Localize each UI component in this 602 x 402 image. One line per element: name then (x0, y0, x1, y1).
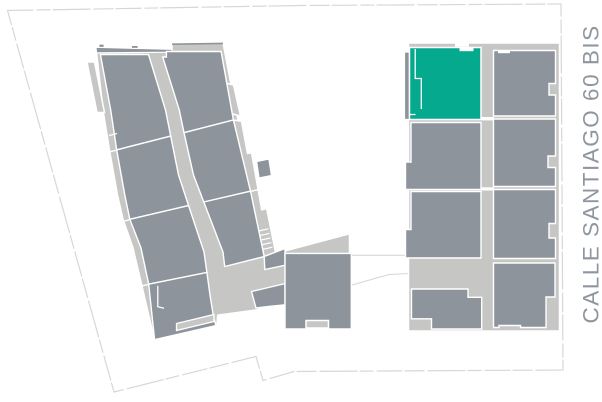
svg-text:CALLE SANTIAGO 60 BIS: CALLE SANTIAGO 60 BIS (579, 24, 602, 323)
